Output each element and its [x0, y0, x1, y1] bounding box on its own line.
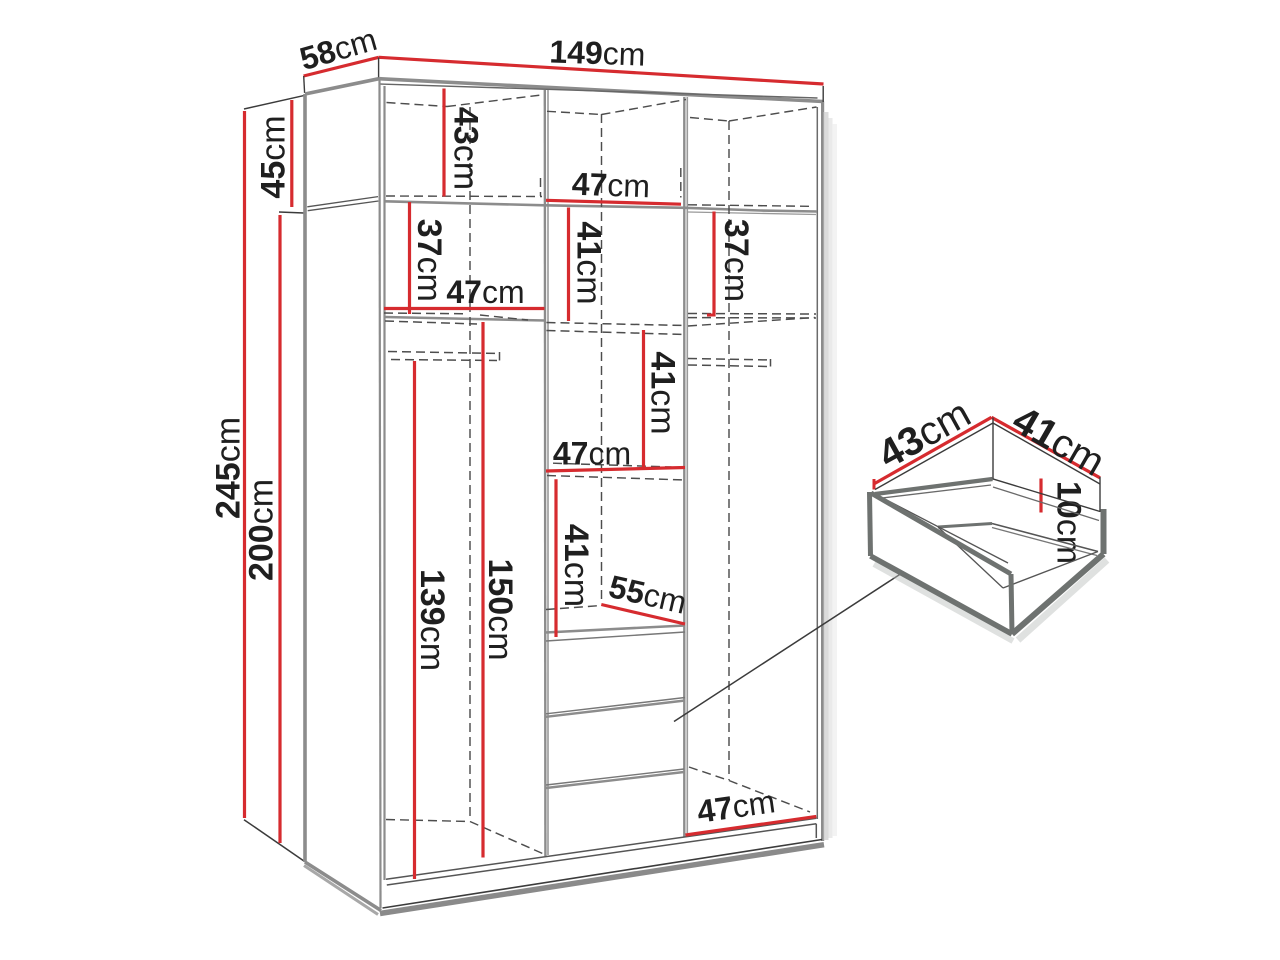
- svg-text:47cm: 47cm: [553, 436, 631, 472]
- svg-text:45cm: 45cm: [255, 115, 293, 198]
- svg-text:41cm: 41cm: [557, 524, 595, 607]
- svg-text:47cm: 47cm: [571, 166, 650, 205]
- svg-text:149cm: 149cm: [549, 33, 646, 72]
- svg-text:43cm: 43cm: [447, 107, 485, 190]
- svg-text:139cm: 139cm: [413, 569, 451, 671]
- svg-text:47cm: 47cm: [446, 274, 524, 310]
- svg-text:37cm: 37cm: [410, 219, 448, 302]
- svg-text:37cm: 37cm: [717, 219, 755, 302]
- svg-text:200cm: 200cm: [243, 479, 281, 581]
- svg-text:41cm: 41cm: [570, 221, 608, 304]
- svg-text:41cm: 41cm: [644, 351, 682, 434]
- svg-text:150cm: 150cm: [481, 558, 519, 660]
